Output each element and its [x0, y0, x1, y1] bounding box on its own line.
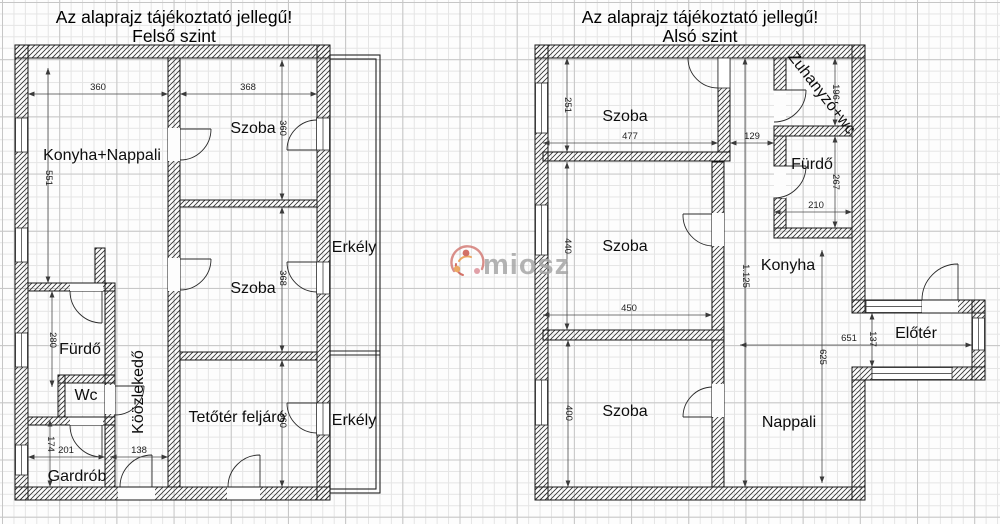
- watermark-brand: miosz: [483, 249, 570, 281]
- room-label-furdo: Fürdő: [59, 341, 101, 358]
- dim-furdo-height: 280: [47, 332, 58, 348]
- room-label-nappali: Nappali: [762, 414, 816, 431]
- dim-furdo-height: 267: [830, 174, 841, 190]
- dim-konyha-height: 551: [43, 170, 54, 186]
- room-label-kozlekedo: Köözlekedő: [130, 350, 147, 434]
- room-label-szoba-mid: Szoba: [602, 238, 647, 255]
- dim-szoba-mid-width: 450: [621, 303, 637, 314]
- room-label-gardrob: Gardrób: [48, 468, 107, 485]
- dim-szoba-top-width: 477: [622, 131, 638, 142]
- dim-konyha-width: 360: [90, 82, 106, 93]
- upper-level-title: Felső szint: [132, 26, 216, 46]
- dim-folyoso-width: 129: [744, 131, 760, 142]
- lower-level-title: Alsó szint: [663, 26, 738, 46]
- dim-gardrob-height: 174: [45, 436, 56, 452]
- dim-gardrob-width: 201: [58, 445, 74, 456]
- dim-teljes-height: 1.125: [740, 264, 751, 288]
- dim-nappali-width: 651: [841, 333, 857, 344]
- room-label-erkely-top: Erkély: [332, 239, 376, 256]
- dim-atjaro-height: 137: [867, 331, 878, 347]
- room-label-erkely-bottom: Erkély: [332, 412, 376, 429]
- lower-plan: Az alaprajz tájékoztató jellegű! Alsó sz…: [535, 7, 985, 500]
- room-label-szoba-mid: Szoba: [230, 280, 275, 297]
- room-label-konyha-nappali: Konyha+Nappali: [43, 147, 161, 164]
- room-label-eloter: Előtér: [895, 325, 937, 342]
- watermark: miosz: [451, 246, 570, 281]
- room-label-szoba-bottom: Szoba: [602, 403, 647, 420]
- dim-szoba-mid-height: 368: [277, 270, 288, 286]
- lower-disclaimer: Az alaprajz tájékoztató jellegű!: [582, 7, 818, 27]
- room-label-wc: Wc: [74, 387, 97, 404]
- room-label-szoba-top: Szoba: [602, 108, 647, 125]
- dim-nappali-height: 625: [817, 349, 828, 365]
- floorplan-document: Az alaprajz tájékoztató jellegű! Felső s…: [0, 0, 1000, 524]
- room-label-szoba-top: Szoba: [230, 120, 275, 137]
- dim-bejarat-width: 138: [131, 445, 147, 456]
- miosz-logo-icon: [451, 246, 483, 275]
- room-label-konyha: Konyha: [761, 257, 815, 274]
- upper-plan: Az alaprajz tájékoztató jellegű! Felső s…: [15, 7, 380, 500]
- dim-furdo-width: 210: [808, 200, 824, 211]
- dim-szoba-top-height: 360: [277, 120, 288, 136]
- upper-disclaimer: Az alaprajz tájékoztató jellegű!: [56, 7, 292, 27]
- dim-szoba-top-width: 368: [240, 82, 256, 93]
- room-label-furdo: Fürdő: [791, 156, 833, 173]
- room-label-tetoter: Tetőtér feljáró: [189, 409, 286, 426]
- room-label-zuhanyzo: Zuhanyzó+wc: [784, 49, 858, 138]
- dim-szoba-bottom-height: 400: [563, 405, 574, 421]
- dim-szoba-top-height: 251: [562, 97, 573, 113]
